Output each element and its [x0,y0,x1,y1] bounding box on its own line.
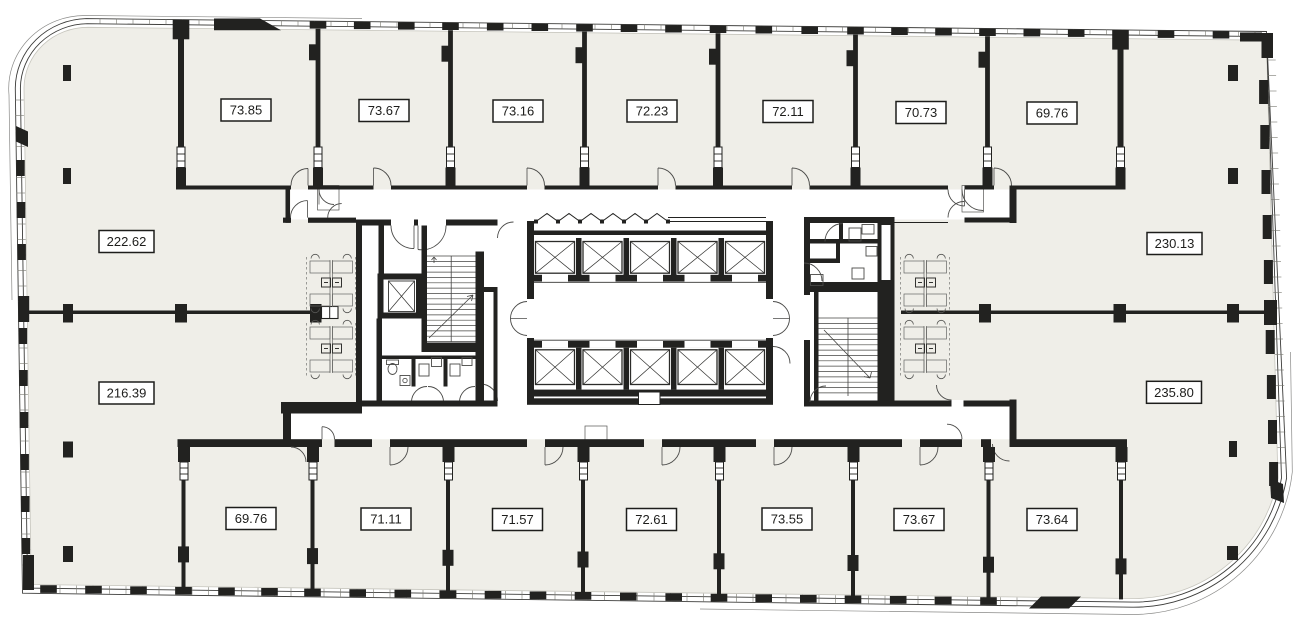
svg-text:72.61: 72.61 [635,512,668,527]
svg-text:73.67: 73.67 [903,512,936,527]
svg-text:73.55: 73.55 [771,512,804,527]
svg-text:235.80: 235.80 [1154,385,1194,400]
svg-text:230.13: 230.13 [1155,236,1195,251]
svg-text:73.85: 73.85 [230,103,263,118]
svg-text:216.39: 216.39 [107,386,147,401]
svg-text:73.64: 73.64 [1036,512,1069,527]
svg-text:73.67: 73.67 [368,103,401,118]
svg-text:70.73: 70.73 [905,105,938,120]
svg-text:72.11: 72.11 [772,104,804,119]
svg-text:222.62: 222.62 [107,234,147,249]
svg-text:72.23: 72.23 [636,104,669,119]
svg-text:71.11: 71.11 [370,512,402,527]
svg-text:73.16: 73.16 [502,104,535,119]
svg-text:71.57: 71.57 [501,512,534,527]
svg-text:69.76: 69.76 [235,511,268,526]
svg-text:69.76: 69.76 [1036,106,1069,121]
